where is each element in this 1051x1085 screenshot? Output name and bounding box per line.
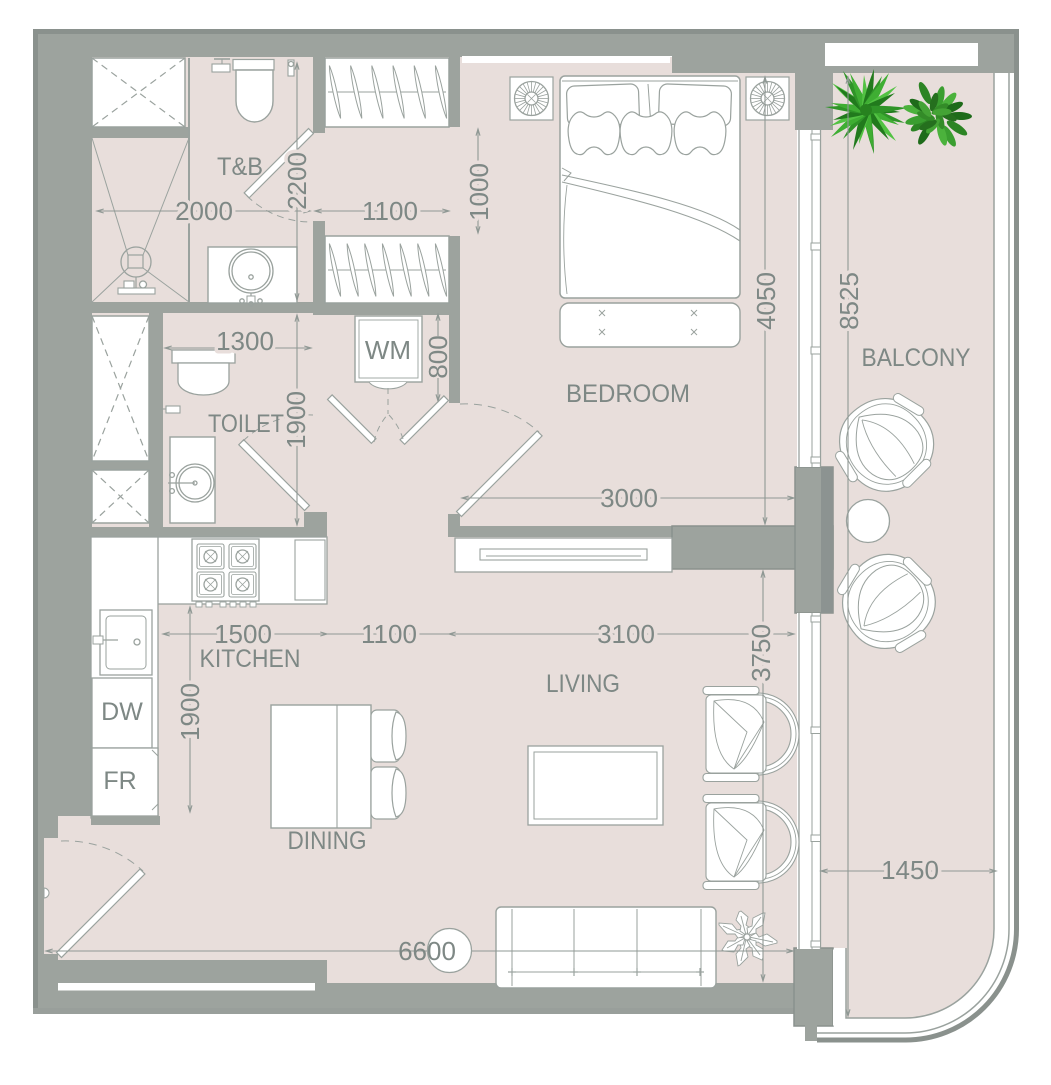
svg-text:4050: 4050 xyxy=(751,272,781,330)
svg-text:1100: 1100 xyxy=(362,196,418,226)
svg-text:3100: 3100 xyxy=(597,619,655,649)
svg-text:1900: 1900 xyxy=(281,391,311,449)
svg-text:LIVING: LIVING xyxy=(546,670,620,698)
svg-text:DW: DW xyxy=(101,698,143,726)
svg-text:DINING: DINING xyxy=(288,827,367,855)
svg-text:WM: WM xyxy=(365,335,411,365)
svg-text:1000: 1000 xyxy=(464,163,494,221)
svg-text:2200: 2200 xyxy=(282,152,312,210)
svg-text:BEDROOM: BEDROOM xyxy=(566,380,690,408)
svg-text:FR: FR xyxy=(103,767,136,795)
svg-text:2000: 2000 xyxy=(175,196,233,226)
svg-text:8525: 8525 xyxy=(834,272,864,330)
svg-text:1900: 1900 xyxy=(175,683,205,741)
svg-text:800: 800 xyxy=(423,335,453,378)
svg-text:KITCHEN: KITCHEN xyxy=(200,645,301,673)
svg-text:3000: 3000 xyxy=(600,483,658,513)
svg-text:1100: 1100 xyxy=(361,619,417,649)
svg-text:3750: 3750 xyxy=(746,624,776,682)
svg-text:T&B: T&B xyxy=(217,153,263,181)
svg-text:TOILET: TOILET xyxy=(208,410,284,438)
svg-text:6600: 6600 xyxy=(398,936,456,966)
svg-text:BALCONY: BALCONY xyxy=(862,344,971,372)
svg-text:1300: 1300 xyxy=(216,326,274,356)
svg-text:1450: 1450 xyxy=(881,855,939,885)
